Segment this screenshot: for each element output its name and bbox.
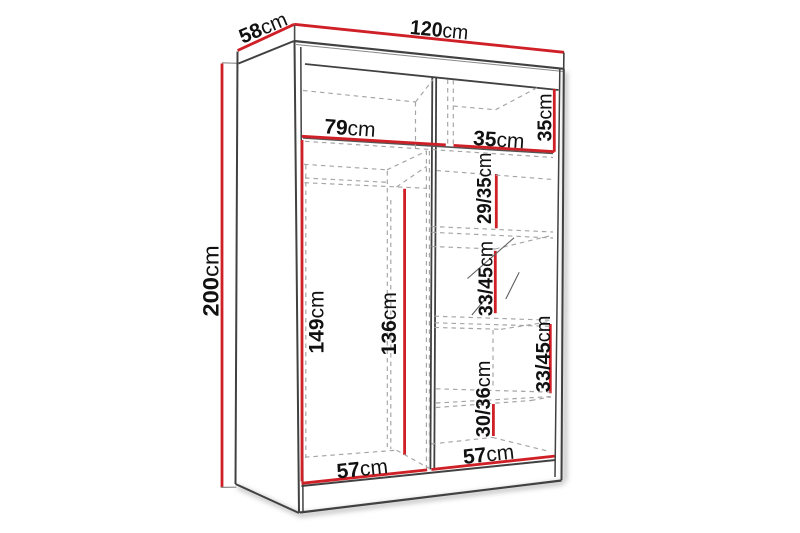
svg-text:136cm: 136cm [378, 292, 401, 355]
svg-text:58cm: 58cm [236, 8, 291, 49]
svg-text:33/45cm: 33/45cm [533, 316, 555, 393]
svg-text:149cm: 149cm [306, 290, 329, 353]
svg-text:29/35cm: 29/35cm [474, 153, 496, 224]
svg-text:57cm: 57cm [336, 455, 389, 483]
svg-text:33/45cm: 33/45cm [475, 241, 497, 316]
svg-text:120cm: 120cm [409, 16, 469, 44]
svg-text:79cm: 79cm [324, 115, 377, 142]
svg-text:200cm: 200cm [198, 245, 223, 316]
svg-text:30/36cm: 30/36cm [473, 361, 495, 438]
svg-text:35cm: 35cm [534, 93, 556, 141]
svg-text:35cm: 35cm [472, 127, 525, 154]
